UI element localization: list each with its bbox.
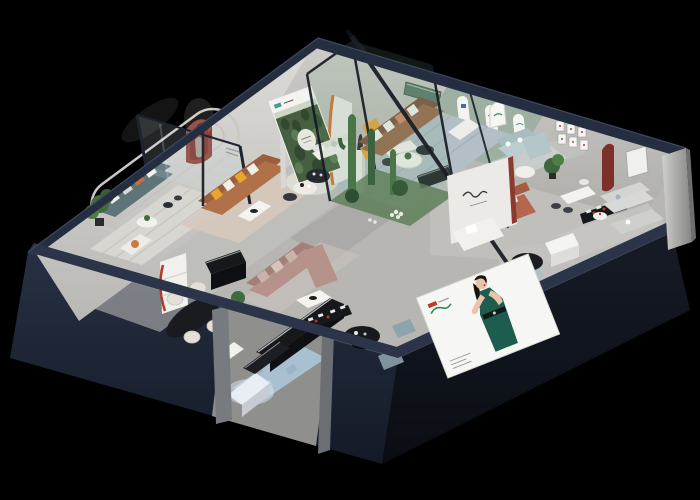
dark-chair <box>283 193 297 201</box>
black-side-table <box>163 202 173 208</box>
corner-column <box>662 148 696 250</box>
maroon-arch-niche <box>602 144 614 192</box>
arch-logo-mark <box>461 104 466 108</box>
showroom-svg <box>0 0 700 500</box>
black-side-table-2 <box>174 196 182 201</box>
white-side-table <box>515 166 535 178</box>
white-wall-panel <box>626 146 648 178</box>
arched-mini-sign <box>490 102 506 128</box>
showroom-render <box>0 0 700 500</box>
